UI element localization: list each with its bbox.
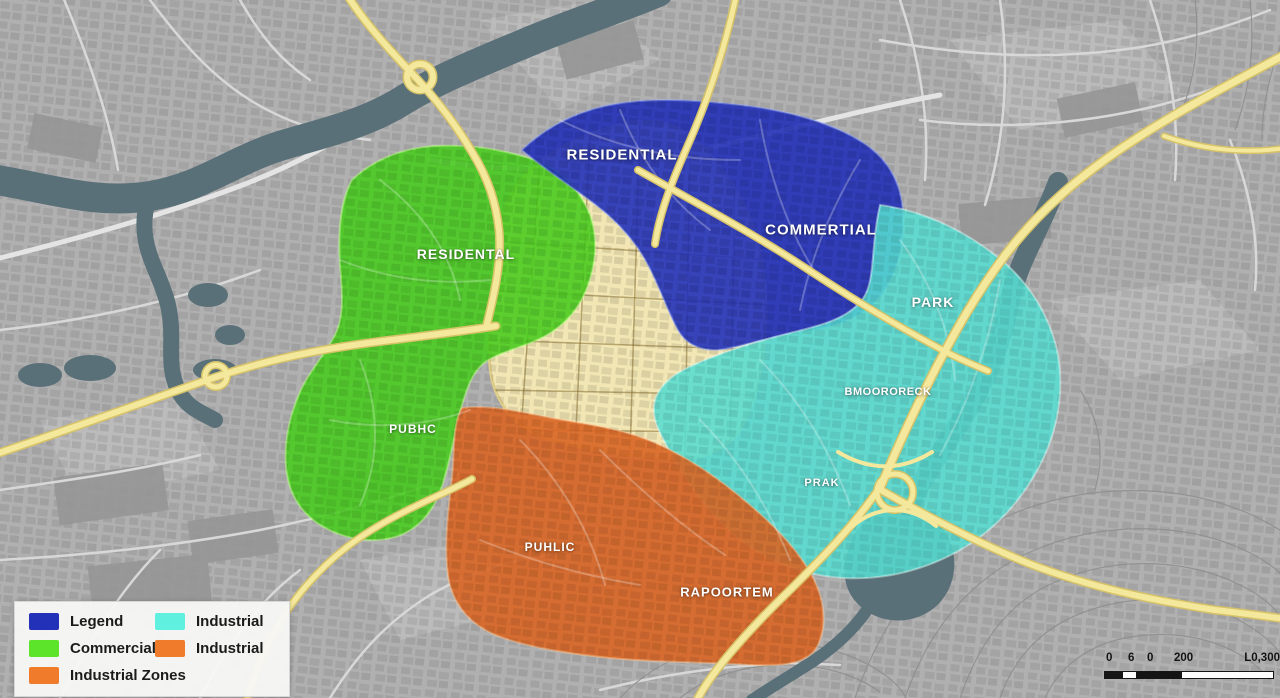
- legend-item: Industrial Zones: [29, 667, 149, 684]
- zone-label-residential: RESIDENTIAL: [566, 147, 677, 164]
- scale-label: 0: [1106, 652, 1112, 664]
- legend-item: Legend: [29, 613, 149, 630]
- zoning-map[interactable]: RESIDENTIAL COMMERTIAL RESIDENTAL PARK B…: [0, 0, 1280, 698]
- legend-swatch-orange: [155, 640, 185, 657]
- map-canvas: [0, 0, 1280, 698]
- zone-label-rapoortem: RAPOORTEM: [680, 585, 774, 600]
- scale-labels: 0 6 0 200 L0,300: [1104, 652, 1280, 669]
- scale-label: 6: [1128, 652, 1134, 664]
- legend-label: Industrial Zones: [70, 667, 186, 684]
- legend-swatch-orange2: [29, 667, 59, 684]
- zone-label-park: PARK: [912, 294, 955, 310]
- zone-label-pubhc: PUBHC: [389, 422, 437, 436]
- zone-label-residental: RESIDENTAL: [417, 246, 515, 262]
- zone-label-bmoororeck: BMOORORECK: [845, 386, 932, 398]
- legend-swatch-green: [29, 640, 59, 657]
- legend-swatch-cyan: [155, 613, 185, 630]
- legend-label: Legend: [70, 613, 123, 630]
- scale-track: [1104, 671, 1274, 679]
- legend-item: Industrial: [155, 613, 275, 630]
- zone-label-prak: PRAK: [804, 477, 839, 489]
- legend-label: Commercial: [70, 640, 156, 657]
- scale-label: 0: [1147, 652, 1153, 664]
- zone-label-commertial: COMMERTIAL: [765, 222, 877, 239]
- legend-item: Commercial: [29, 640, 149, 657]
- scale-label: 200: [1174, 652, 1193, 664]
- legend-item: Industrial: [155, 640, 275, 657]
- scale-bar: 0 6 0 200 L0,300: [1104, 652, 1280, 679]
- legend-label: Industrial: [196, 613, 264, 630]
- scale-label: L0,300: [1244, 652, 1280, 664]
- legend-panel: Legend Industrial Commercial Industrial …: [14, 601, 290, 697]
- legend-label: Industrial: [196, 640, 264, 657]
- zone-label-puhlic: PUHLIC: [525, 540, 576, 554]
- legend-swatch-blue: [29, 613, 59, 630]
